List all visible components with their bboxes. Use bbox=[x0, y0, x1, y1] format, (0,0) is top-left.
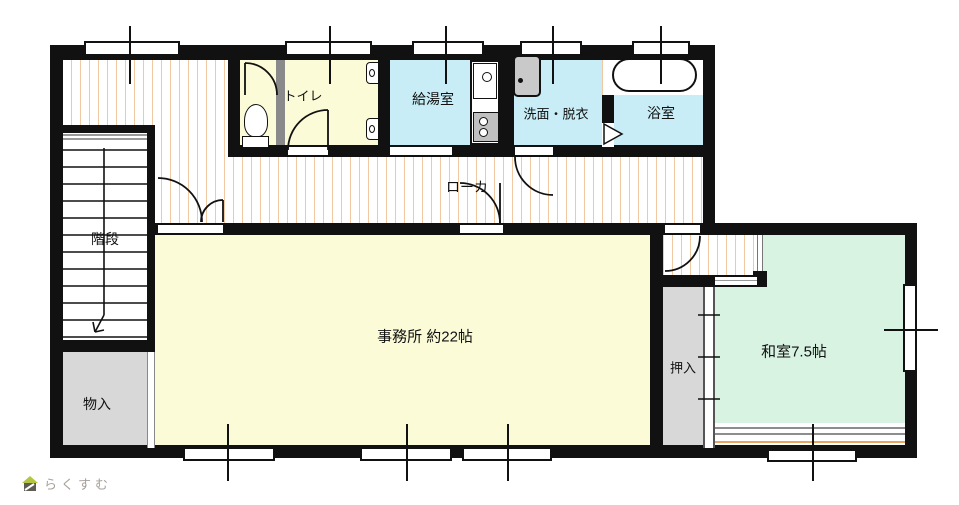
kitchen-stove bbox=[473, 112, 499, 142]
window bbox=[360, 447, 452, 461]
washing-machine-dot bbox=[518, 78, 523, 83]
wall-toilet-right bbox=[378, 45, 390, 157]
wall-kitchenette-right bbox=[500, 45, 514, 157]
japanese-room-entry-slider-track bbox=[715, 280, 757, 281]
site-logo-text: らくすむ bbox=[44, 474, 112, 493]
wall-washroom-bathroom bbox=[602, 95, 614, 125]
room-closet-label: 押入 bbox=[670, 362, 696, 375]
window bbox=[183, 447, 275, 461]
japanese-room-edge-strip bbox=[757, 235, 763, 271]
window bbox=[462, 447, 552, 461]
washing-machine bbox=[513, 55, 541, 97]
room-toilet-label: トイレ bbox=[283, 90, 322, 103]
office-door-opening-center bbox=[460, 223, 503, 235]
room-stairs-label: 階段 bbox=[91, 232, 119, 246]
closet-fusuma bbox=[703, 287, 715, 448]
corridor-nook-floor bbox=[655, 235, 760, 280]
wall-left bbox=[50, 45, 63, 458]
room-washroom-label: 洗面・脱衣 bbox=[523, 108, 588, 121]
site-logo: らくすむ bbox=[22, 474, 112, 493]
room-kitchenette-label: 給湯室 bbox=[412, 92, 454, 106]
wall-office-closet bbox=[650, 229, 663, 448]
stove-burner-icon bbox=[479, 117, 488, 126]
bathroom-folding-door-opening bbox=[602, 123, 614, 147]
window bbox=[412, 41, 484, 56]
wall-right-upper bbox=[703, 45, 715, 235]
shoji-track-line bbox=[713, 427, 905, 429]
window bbox=[520, 41, 582, 56]
nook-door-opening bbox=[665, 223, 700, 235]
floor-plan: 階段 物入 トイレ 給湯室 洗面・脱衣 浴室 ローカ 事務所 約22帖 押入 和… bbox=[0, 0, 959, 505]
japanese-room-entry-slider bbox=[715, 275, 757, 287]
storage-slider bbox=[147, 352, 155, 448]
wall-basin-dot bbox=[369, 125, 375, 133]
kitchenette-opening bbox=[390, 145, 452, 157]
wall-mid-horizontal bbox=[147, 223, 917, 235]
shoji-track-line bbox=[713, 433, 905, 435]
wall-basin-dot bbox=[369, 69, 375, 77]
stairs-frame-top bbox=[57, 125, 155, 133]
toilet-bowl bbox=[244, 104, 268, 137]
wall-nook-bottom bbox=[663, 275, 715, 287]
office-door-opening-left bbox=[158, 223, 223, 235]
kitchen-sink-drain-icon bbox=[482, 72, 492, 82]
washroom-door-opening bbox=[515, 145, 553, 157]
room-storage-label: 物入 bbox=[83, 397, 111, 411]
corridor-label: ローカ bbox=[446, 180, 488, 194]
room-bathroom-label: 浴室 bbox=[647, 106, 675, 120]
toilet-door-opening bbox=[288, 145, 328, 157]
house-icon bbox=[22, 476, 38, 492]
wall-storage-top bbox=[57, 340, 155, 352]
room-japanese-label: 和室7.5帖 bbox=[761, 345, 827, 360]
bathtub bbox=[612, 58, 697, 92]
stove-burner-icon bbox=[479, 128, 488, 137]
window bbox=[285, 41, 372, 56]
window bbox=[903, 284, 917, 372]
window bbox=[767, 449, 857, 462]
room-office-label: 事務所 約22帖 bbox=[377, 330, 473, 345]
wall-toilet-left bbox=[228, 45, 240, 157]
stairs-frame-right bbox=[147, 125, 155, 352]
window bbox=[84, 41, 180, 56]
tatami-edge-line bbox=[713, 441, 905, 443]
toilet-tank bbox=[242, 136, 269, 148]
window bbox=[632, 41, 690, 56]
